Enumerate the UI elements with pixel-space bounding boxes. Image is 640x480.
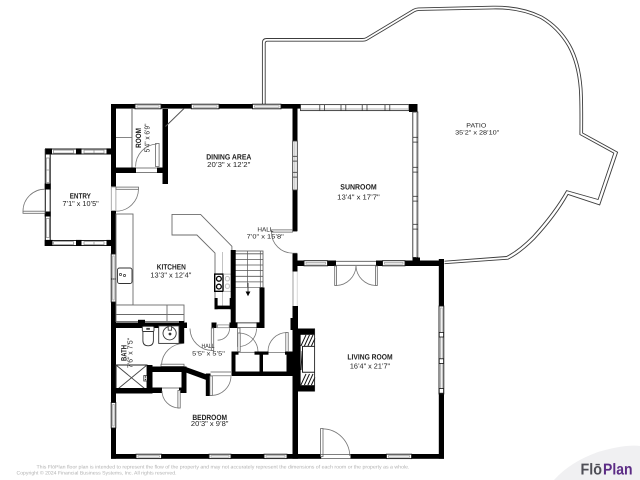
svg-text:HALL: HALL (257, 226, 274, 233)
svg-text:Plan: Plan (603, 462, 633, 479)
svg-text:20’3" x 12’2": 20’3" x 12’2" (207, 160, 251, 169)
svg-text:13’3" x 12’4": 13’3" x 12’4" (150, 270, 191, 279)
svg-text:7’0" x 15’8": 7’0" x 15’8" (247, 234, 284, 241)
svg-text:HALL: HALL (202, 343, 216, 350)
svg-text:PATIO: PATIO (466, 122, 486, 129)
svg-text:16’4" x 21’7": 16’4" x 21’7" (350, 362, 391, 371)
svg-text:SUNROOM: SUNROOM (340, 183, 376, 192)
svg-text:35’2" x 28’10": 35’2" x 28’10" (455, 130, 499, 137)
svg-text:5’5" x 5’5": 5’5" x 5’5" (192, 350, 225, 357)
svg-text:13’4" x 17’7": 13’4" x 17’7" (337, 192, 380, 201)
svg-text:20’3" x 9’8": 20’3" x 9’8" (191, 419, 229, 428)
svg-text:Copyright © 2024 Financial Bus: Copyright © 2024 Financial Business Syst… (17, 470, 177, 476)
svg-text:LIVING ROOM: LIVING ROOM (347, 353, 392, 362)
svg-text:Flō: Flō (581, 462, 603, 479)
svg-text:5’4" x 6’9": 5’4" x 6’9" (142, 123, 151, 152)
svg-text:7’6" x 7’5": 7’6" x 7’5" (126, 337, 135, 368)
svg-text:7’1" x 10’5": 7’1" x 10’5" (63, 199, 100, 208)
